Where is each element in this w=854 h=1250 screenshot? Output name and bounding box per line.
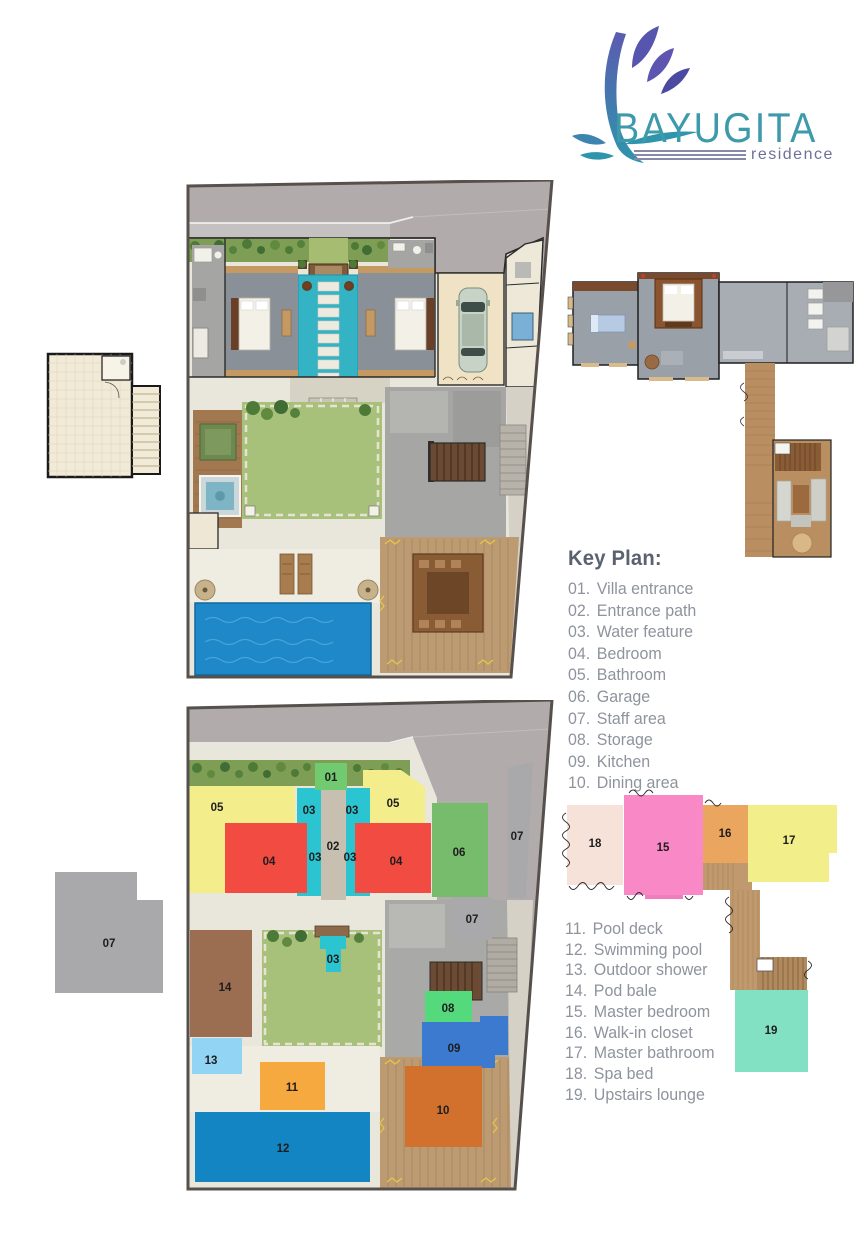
- legend-item: 07.Staff area: [568, 708, 696, 730]
- legend-item: 01.Villa entrance: [568, 578, 696, 600]
- legend-item: 05.Bathroom: [568, 664, 696, 686]
- area-11-pool-deck: 11: [260, 1062, 325, 1110]
- area-13-outdoor-shower: 13: [192, 1038, 242, 1074]
- pod-bale-deck: [193, 410, 242, 528]
- upper-floor-plan: [565, 263, 854, 561]
- svg-text:05: 05: [211, 802, 224, 814]
- upper-legend: 11.Pool deck 12.Swimming pool 13.Outdoor…: [565, 919, 715, 1105]
- area-15-master-bedroom: 15: [624, 795, 703, 899]
- pool-deck: [189, 549, 380, 603]
- logo-subtitle: residence: [751, 146, 834, 164]
- staff-annex-plan: [45, 350, 163, 482]
- swimming-pool: [195, 603, 371, 675]
- svg-text:09: 09: [448, 1043, 461, 1055]
- svg-text:16: 16: [719, 828, 732, 840]
- area-16-walk-in-closet: 16: [703, 805, 748, 863]
- area-14-pod-bale: 14: [190, 930, 252, 1037]
- svg-text:05: 05: [387, 798, 400, 810]
- area-17-master-bathroom: 17: [748, 805, 837, 882]
- logo-rules: [634, 150, 746, 160]
- svg-text:15: 15: [657, 842, 670, 854]
- legend-item: 17.Master bathroom: [565, 1043, 715, 1064]
- legend-item: 16.Walk-in closet: [565, 1023, 715, 1044]
- kitchen-area: [385, 387, 506, 537]
- svg-text:14: 14: [219, 982, 232, 994]
- closet-bathroom: [719, 282, 853, 363]
- flyer-page: BAYUGITA residence: [0, 0, 854, 1250]
- area-08-storage: 08: [425, 991, 472, 1023]
- area-04-bedroom-right: 04: [355, 823, 431, 893]
- legend-item: 12.Swimming pool: [565, 940, 715, 961]
- logo-subtitle-row: residence: [634, 146, 834, 164]
- svg-text:03: 03: [303, 805, 316, 817]
- bathroom-right: [388, 240, 435, 268]
- spa-room: [568, 282, 640, 367]
- legend-item: 13.Outdoor shower: [565, 960, 715, 981]
- svg-text:07: 07: [466, 914, 479, 926]
- bathroom-left: [192, 245, 225, 377]
- area-07-staff-small: 07: [452, 897, 492, 940]
- svg-text:12: 12: [277, 1143, 290, 1155]
- area-04-bedroom-left: 04: [225, 823, 307, 893]
- svg-text:01: 01: [325, 772, 338, 784]
- legend-item: 11.Pool deck: [565, 919, 715, 940]
- svg-text:07: 07: [511, 831, 524, 843]
- schematic-ground-plan: 05 05 04 04 03 03: [185, 700, 555, 1192]
- svg-text:19: 19: [765, 1025, 778, 1037]
- svg-text:06: 06: [453, 847, 466, 859]
- svg-text:03: 03: [346, 805, 359, 817]
- svg-text:03: 03: [327, 954, 340, 966]
- bedroom-right: [358, 266, 435, 377]
- logo-title: BAYUGITA: [614, 104, 818, 152]
- area-19-upstairs-lounge: 19: [735, 990, 808, 1072]
- svg-text:07: 07: [103, 938, 116, 950]
- area-01-villa-entrance: 01: [315, 763, 347, 790]
- area-07-staff-annex: 07: [55, 872, 163, 993]
- legend-item: 03.Water feature: [568, 621, 696, 643]
- master-bedroom-room: [638, 273, 719, 381]
- svg-text:03: 03: [309, 852, 322, 864]
- logo: BAYUGITA residence: [572, 22, 854, 174]
- ground-floor-plan: [185, 180, 555, 680]
- garage: [438, 273, 504, 385]
- key-plan-legend: Key Plan: 01.Villa entrance 02.Entrance …: [568, 546, 696, 794]
- area-12-swimming-pool: 12: [195, 1112, 370, 1182]
- legend-item: 19.Upstairs lounge: [565, 1085, 715, 1106]
- sidewalk: [188, 223, 390, 238]
- svg-text:10: 10: [437, 1105, 450, 1117]
- upstairs-lounge-room: [773, 440, 831, 557]
- svg-text:04: 04: [390, 856, 403, 868]
- dining-deck: [380, 537, 519, 673]
- area-10-dining-area: 10: [405, 1066, 482, 1147]
- area-18-spa-bed: 18: [567, 805, 623, 885]
- svg-text:13: 13: [205, 1055, 218, 1067]
- legend-item: 06.Garage: [568, 686, 696, 708]
- schematic-staff-annex: 07: [55, 870, 167, 996]
- legend-item: 08.Storage: [568, 729, 696, 751]
- car: [456, 288, 490, 372]
- area-02-label: 02: [327, 841, 340, 853]
- svg-text:08: 08: [442, 1003, 455, 1015]
- legend-item: 02.Entrance path: [568, 600, 696, 622]
- annex-stairs: [132, 386, 160, 474]
- bedroom-left: [225, 266, 298, 377]
- annex-toilet: [102, 356, 130, 380]
- legend-item: 18.Spa bed: [565, 1064, 715, 1085]
- upper-corridor-wood: [703, 863, 807, 990]
- legend-item: 04.Bedroom: [568, 643, 696, 665]
- legend-item: 14.Pod bale: [565, 981, 715, 1002]
- area-06-garage: 06: [432, 803, 488, 897]
- svg-text:04: 04: [263, 856, 276, 868]
- legend-item: 15.Master bedroom: [565, 1002, 715, 1023]
- svg-text:17: 17: [783, 835, 796, 847]
- canopy: [315, 926, 349, 937]
- lawn: [242, 400, 382, 519]
- svg-text:11: 11: [286, 1082, 299, 1094]
- legend-item: 09.Kitchen: [568, 751, 696, 773]
- svg-text:03: 03: [344, 852, 357, 864]
- svg-text:18: 18: [589, 838, 602, 850]
- outdoor-shower-room: [189, 513, 218, 549]
- key-plan-title: Key Plan:: [568, 546, 696, 571]
- upper-corridor: [741, 363, 776, 557]
